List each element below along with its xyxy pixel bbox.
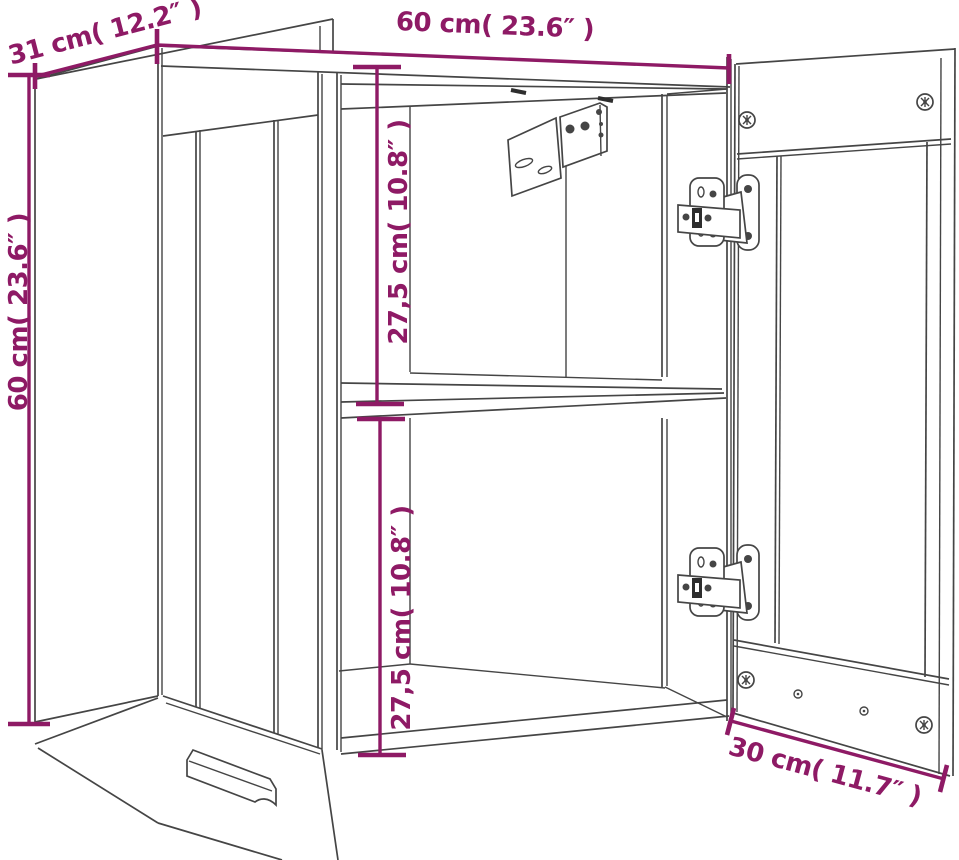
cabinet-carcass [35,19,731,722]
door-screw [860,707,868,715]
dimension-upper-compartment-27-5cm: 27,5 cm( 10.8″ ) [353,67,414,404]
door-screw [917,94,933,110]
product-dimension-image: 31 cm( 12.2″ ) 60 cm( 23.6″ ) 60 cm( 23.… [0,0,959,860]
dimension-width-60cm: 60 cm( 23.6″ ) [157,7,729,84]
wall-mount-bracket [508,90,613,196]
dimension-height-60cm: 60 cm( 23.6″ ) [4,75,50,724]
cabinet-dimension-diagram: 31 cm( 12.2″ ) 60 cm( 23.6″ ) 60 cm( 23.… [0,0,959,860]
dimension-label-door-width: 30 cm( 11.7″ ) [725,732,924,812]
right-glass-door-open [733,48,955,776]
bottom-hinge [678,545,759,620]
dimension-label-height: 60 cm( 23.6″ ) [4,213,34,411]
door-screw [739,112,755,128]
top-hinge [678,175,759,250]
dimension-door-width-30cm: 30 cm( 11.7″ ) [725,708,947,812]
shelf [341,373,726,418]
dimension-label-lower-compartment: 27,5 cm( 10.8″ ) [387,505,417,730]
door-screw [738,672,754,688]
door-screw [794,690,802,698]
left-door-open [35,72,338,860]
dimension-label-width: 60 cm( 23.6″ ) [395,7,594,45]
door-screw [916,717,932,733]
door-handle [187,750,276,805]
dimension-label-upper-compartment: 27,5 cm( 10.8″ ) [384,119,414,344]
dimension-lower-compartment-27-5cm: 27,5 cm( 10.8″ ) [357,419,417,755]
